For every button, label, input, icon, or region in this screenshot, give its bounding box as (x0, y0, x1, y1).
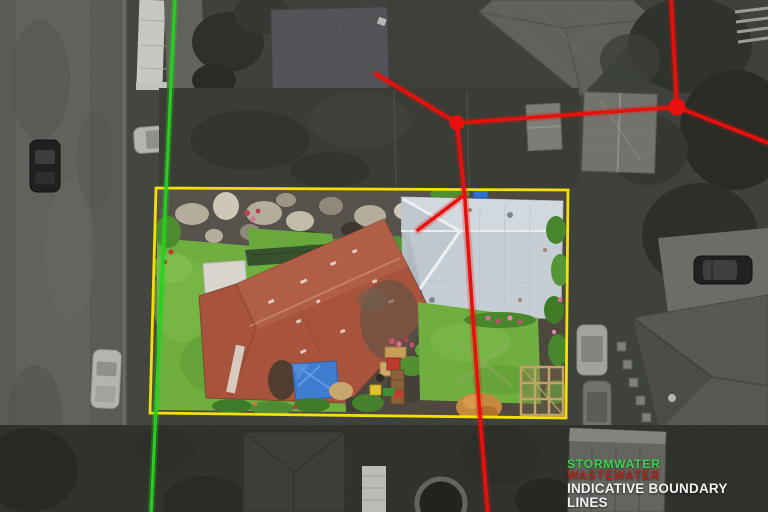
gray-shed (582, 92, 658, 173)
aerial-scene (0, 0, 768, 512)
white-path-bottom (362, 466, 386, 512)
legend-boundary-label: INDICATIVE BOUNDARY LINES (567, 482, 768, 509)
spa-pool (417, 479, 465, 512)
white-car-bottom (91, 349, 122, 408)
legend-wastewater-label: WASTEWATER (567, 469, 768, 481)
black-car (30, 140, 60, 192)
blue-bin (473, 190, 488, 198)
aerial-property-photo: STORMWATER WASTEWATER INDICATIVE BOUNDAR… (0, 0, 768, 512)
house-roof-bottom (243, 432, 345, 512)
junction-node-left (450, 116, 465, 131)
map-legend: STORMWATER WASTEWATER INDICATIVE BOUNDAR… (567, 458, 768, 509)
property-color-area (145, 180, 575, 425)
wood-frame-structure (521, 367, 563, 415)
small-shed (526, 103, 562, 151)
suv-black (694, 256, 752, 284)
yellow-bin (370, 385, 381, 395)
sand-patch (329, 382, 353, 400)
junction-node-right (669, 99, 686, 116)
red-crate (387, 358, 400, 370)
sedan-silver (577, 325, 607, 375)
